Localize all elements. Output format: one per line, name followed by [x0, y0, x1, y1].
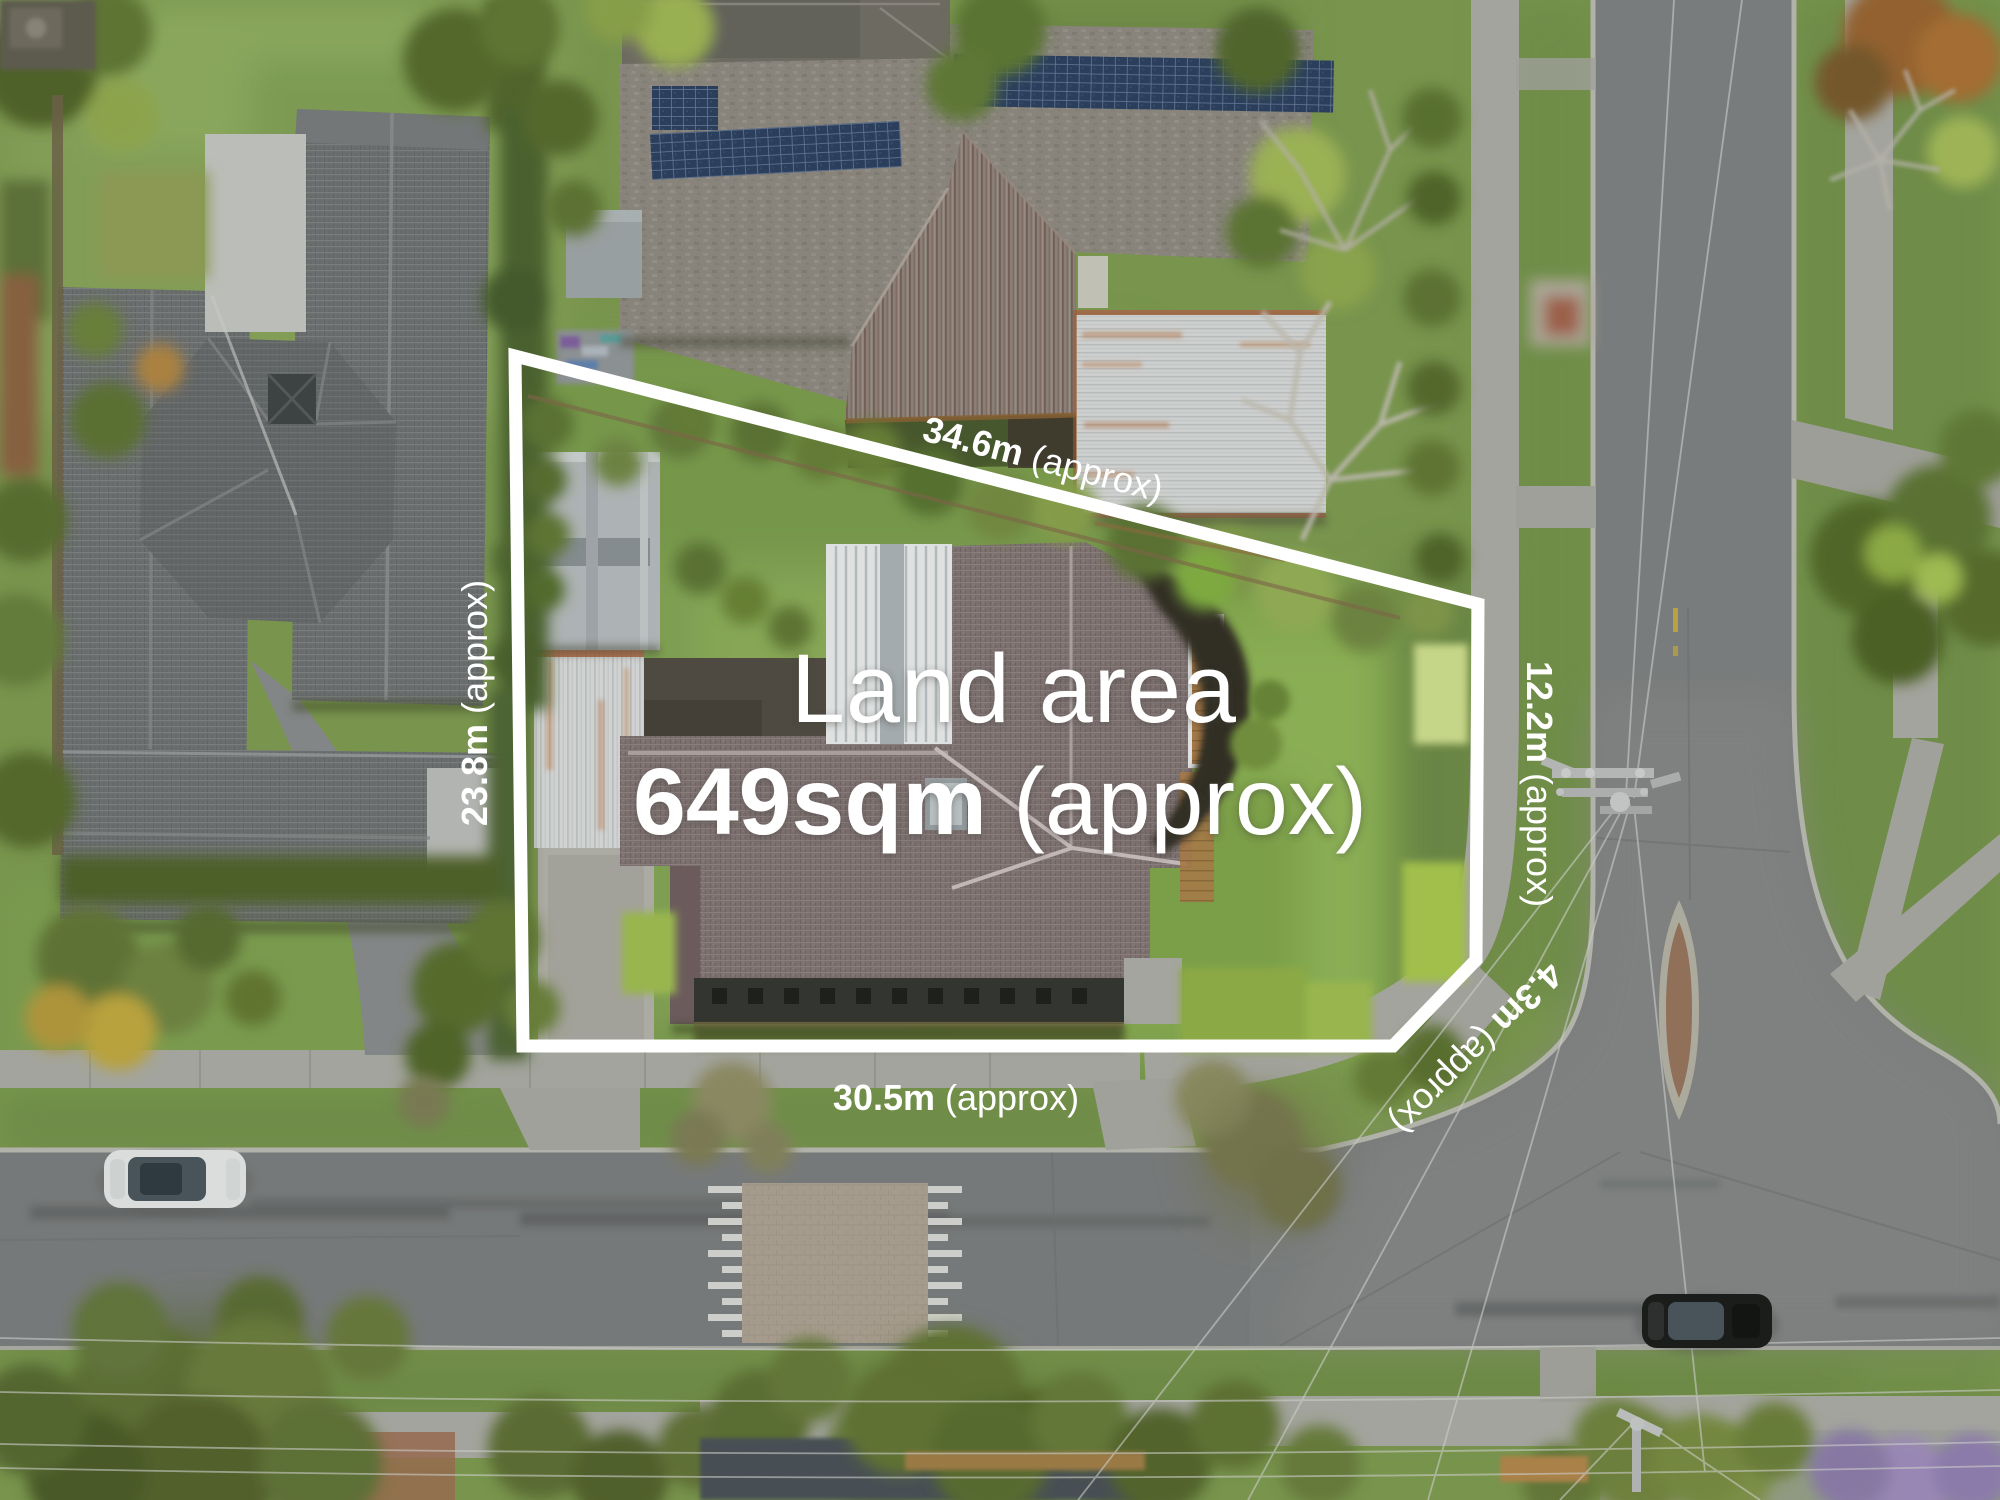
- svg-text:23.8m (approx): 23.8m (approx): [454, 580, 495, 826]
- svg-text:649sqm (approx): 649sqm (approx): [633, 749, 1367, 855]
- svg-text:30.5m (approx): 30.5m (approx): [833, 1077, 1079, 1118]
- svg-text:12.2m (approx): 12.2m (approx): [1519, 661, 1560, 907]
- svg-text:Land area: Land area: [791, 634, 1237, 743]
